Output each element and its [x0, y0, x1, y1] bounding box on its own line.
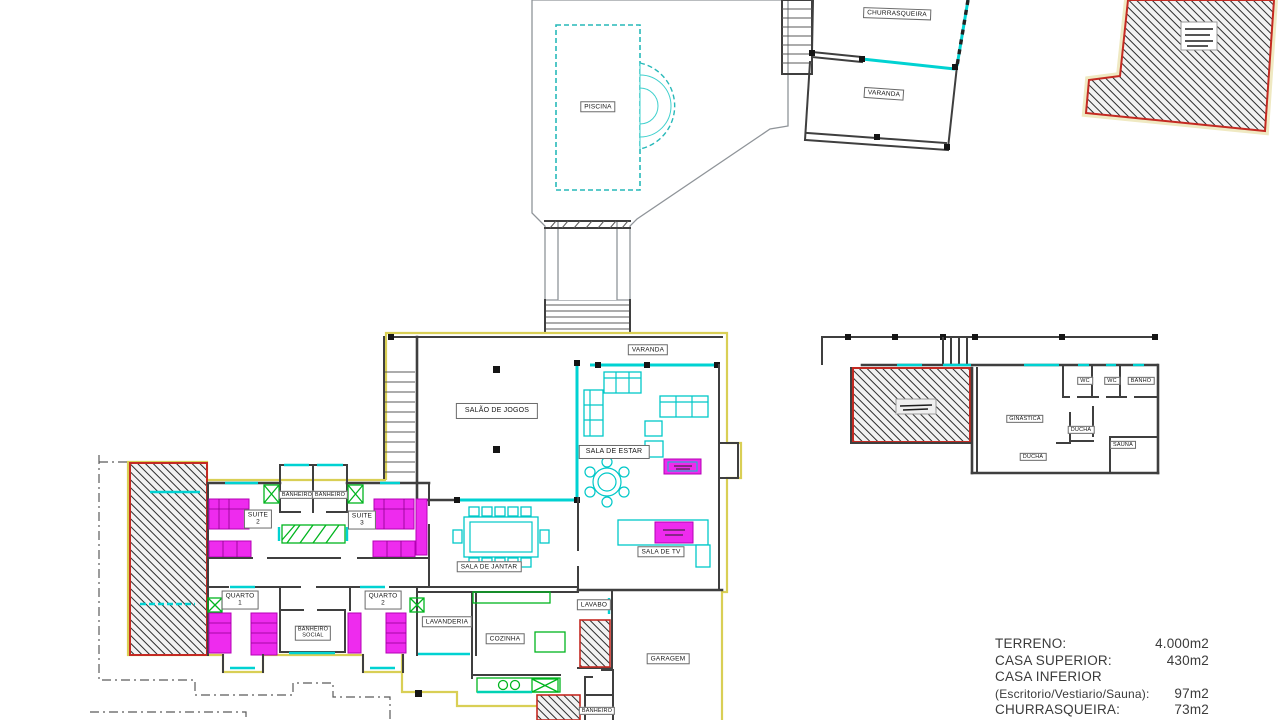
- floorplan-drawing: [0, 0, 1280, 720]
- terrain-patch: [1086, 0, 1274, 131]
- label-lavabo: LAVABO: [577, 599, 611, 610]
- deck-stairs: [545, 300, 630, 333]
- label-suite2: SUITE 2: [244, 510, 272, 529]
- label-suite3: SUITE 3: [348, 511, 376, 530]
- label-churrasqueira: CHURRASQUEIRA: [863, 7, 931, 21]
- label-banheiro-inferior: BANHEIRO: [579, 707, 615, 715]
- floorplan-canvas: PISCINA CHURRASQUEIRA VARANDA VARANDA SA…: [0, 0, 1280, 720]
- area-legend: TERRENO: 4.000m2 CASA SUPERIOR: 430m2 CA…: [995, 636, 1209, 719]
- legend-row-churrasqueira: CHURRASQUEIRA: 73m2: [995, 702, 1209, 719]
- suite3-furniture: [373, 499, 427, 557]
- casa-inferior: [822, 334, 1158, 473]
- legend-row-casa-inferior-detail: (Escritorio/Vestiario/Sauna): 97m2: [995, 686, 1209, 703]
- label-sala-de-tv: SALA DE TV: [637, 546, 684, 557]
- label-piscina: PISCINA: [580, 101, 615, 112]
- label-sala-de-estar: SALA DE ESTAR: [579, 445, 650, 459]
- label-banheiro-social: BANHEIRO SOCIAL: [295, 626, 331, 641]
- churrasqueira-stairs: [782, 0, 812, 74]
- label-banheiro-suite2: BANHEIRO: [279, 491, 315, 499]
- label-lavanderia: LAVANDERIA: [422, 616, 472, 627]
- label-ducha1: DUCHA: [1068, 426, 1095, 434]
- label-varanda: VARANDA: [628, 344, 668, 355]
- label-salao-de-jogos: SALÃO DE JOGOS: [456, 403, 538, 419]
- chimney-hatch-1: [580, 620, 610, 667]
- chimney-hatch-2: [537, 695, 580, 720]
- legend-row-terreno: TERRENO: 4.000m2: [995, 636, 1209, 653]
- label-wc1: WC: [1077, 377, 1093, 385]
- label-banheiro-suite3: BANHEIRO: [312, 491, 348, 499]
- label-ducha2: DUCHA: [1020, 453, 1047, 461]
- label-sala-de-jantar: SALA DE JANTAR: [457, 561, 522, 572]
- jantar-furniture: [453, 507, 549, 567]
- label-banho: BANHO: [1128, 377, 1155, 385]
- pool-deck: [532, 0, 788, 333]
- label-garagem: GARAGEM: [647, 653, 690, 664]
- legend-row-casa-inferior: CASA INFERIOR: [995, 669, 1209, 686]
- label-quarto2: QUARTO 2: [365, 591, 402, 610]
- label-sauna: SAUNA: [1110, 441, 1136, 449]
- label-wc2: WC: [1104, 377, 1120, 385]
- salao-stairs: [384, 337, 415, 478]
- terrain-label-box: [1181, 22, 1217, 50]
- churrasqueira-building: [782, 0, 968, 150]
- label-quarto1: QUARTO 1: [222, 591, 259, 610]
- label-cozinha: COZINHA: [486, 633, 525, 644]
- estar-furniture: [584, 372, 708, 507]
- tv-furniture: [618, 520, 710, 567]
- pergola-label-box: [896, 399, 936, 414]
- legend-row-casa-superior: CASA SUPERIOR: 430m2: [995, 653, 1209, 670]
- label-ginastica: GINASTICA: [1006, 415, 1043, 423]
- hall-table: [282, 525, 345, 543]
